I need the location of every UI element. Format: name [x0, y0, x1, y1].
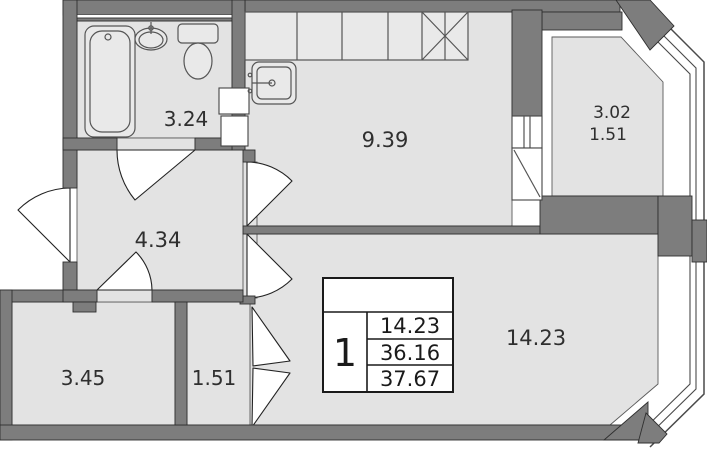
wall-pilaster-outer [692, 220, 707, 262]
balcony-window [512, 116, 542, 148]
balcony-area-label: 3.02 [593, 103, 631, 123]
hall-area-label: 4.34 [135, 228, 182, 252]
living-area-value: 14.23 [380, 314, 440, 338]
wall-left-lower [0, 290, 12, 440]
duct-box-upper [219, 88, 249, 114]
wall-top-left [63, 0, 245, 15]
balcony-reduced-area-label: 1.51 [589, 125, 627, 145]
floor-plan: 3.24 9.39 3.02 1.51 4.34 14.23 3.45 1.51… [0, 0, 707, 451]
wall-storage-divider [175, 302, 187, 425]
rooms-count-value: 1 [333, 331, 357, 375]
wall-balcony-bottom [540, 196, 658, 234]
balcony-window-unit [512, 116, 542, 200]
kitchen-area-label: 9.39 [362, 128, 409, 152]
entrance-door-swing [18, 188, 70, 262]
floor-plan-drawing: 3.24 9.39 3.02 1.51 4.34 14.23 3.45 1.51… [0, 0, 707, 451]
bath-door-threshold [117, 138, 195, 150]
toilet-bowl [184, 43, 212, 79]
wall-left-upper [63, 0, 77, 188]
bathroom-area-label: 3.24 [164, 107, 209, 131]
storage-floor [12, 302, 175, 425]
wall-top-gap [77, 15, 232, 18]
duct-box-lower [221, 116, 248, 146]
wall-top-inner-line [77, 18, 232, 21]
wall-top-right [245, 0, 620, 12]
kitchen-counter [245, 12, 468, 60]
wall-jamb-stub [73, 302, 96, 312]
ventilation-shaft [512, 10, 542, 116]
apartment-area-value: 36.16 [380, 341, 440, 365]
wall-bathroom-bottom-left [63, 138, 117, 150]
wall-hall-bottom-right [152, 290, 243, 302]
toilet-tank [178, 24, 218, 43]
wardrobe-area-label: 1.51 [192, 366, 237, 390]
wall-pilaster-inner [658, 196, 692, 256]
storage-door-threshold [97, 290, 152, 302]
wall-balcony-top [542, 12, 622, 30]
living-area-label: 14.23 [506, 326, 566, 350]
total-area-value: 37.67 [380, 367, 440, 391]
wall-stub-top [243, 150, 255, 162]
wardrobe-floor [187, 302, 250, 425]
storage-area-label: 3.45 [61, 366, 106, 390]
summary-table: 1 14.23 36.16 37.67 [323, 278, 453, 392]
wall-bottom [0, 425, 650, 440]
bathtub [85, 26, 135, 137]
wall-hall-living-divider [243, 226, 540, 234]
wall-hall-bottom-left [63, 290, 97, 302]
